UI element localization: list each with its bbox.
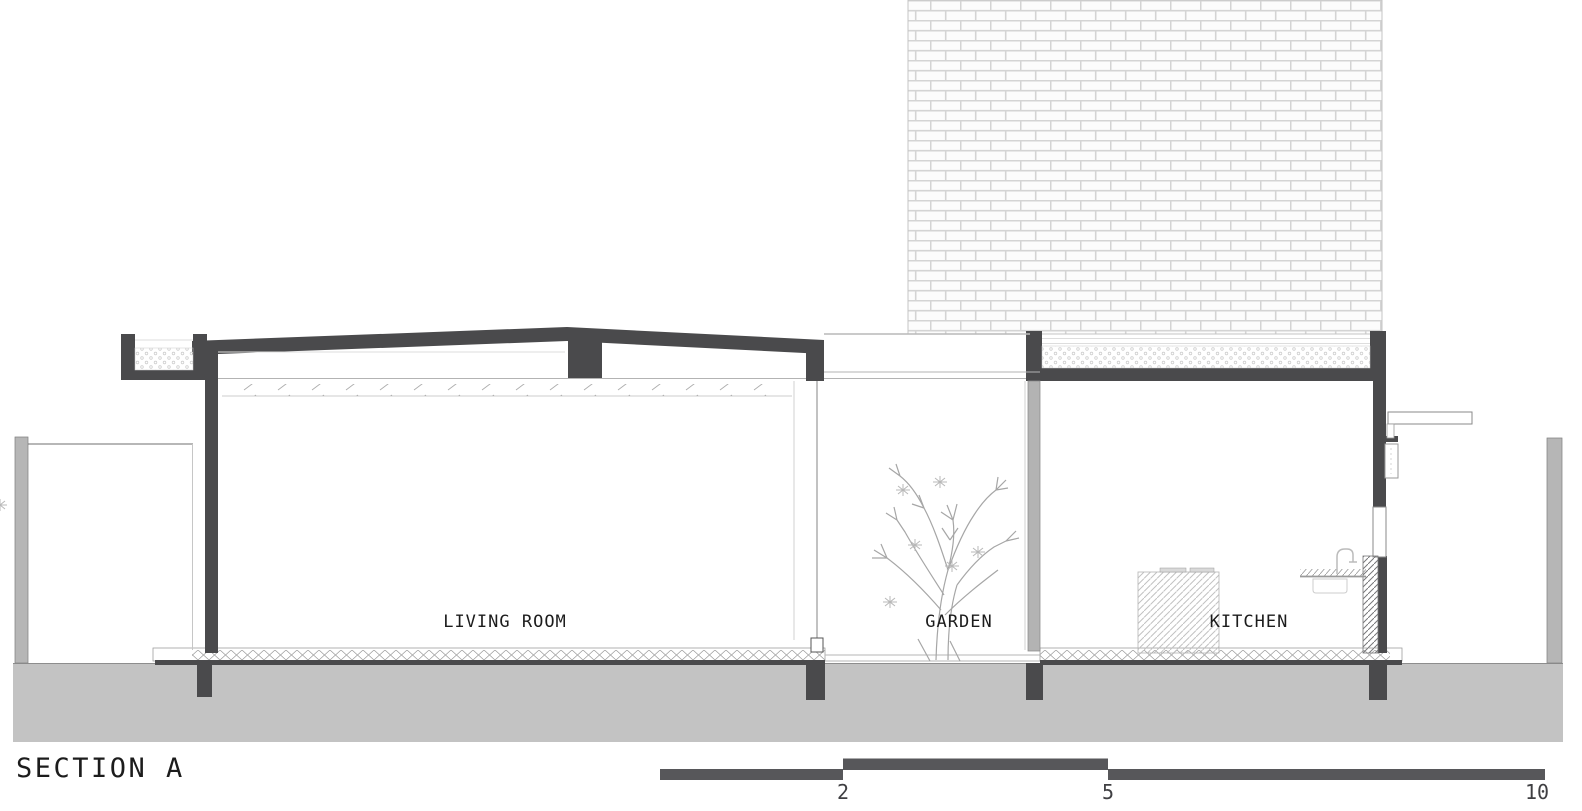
living-roof-end-beam — [806, 340, 824, 381]
kitchen-right-wall-lower — [1378, 556, 1387, 653]
kitchen-left-column — [1028, 381, 1040, 651]
tree-branch-right-low — [945, 570, 998, 615]
counter-hatch — [1300, 569, 1366, 576]
living-room-interior — [218, 352, 823, 652]
kitchen-floor-edge — [1040, 660, 1402, 665]
twig-cluster-2 — [945, 560, 959, 572]
tree-base-flare — [918, 639, 960, 661]
island-body — [1138, 572, 1219, 653]
tree-branch-left-low — [872, 544, 941, 610]
island-cooktop-2 — [1190, 568, 1214, 572]
living-roof-slab — [192, 327, 824, 355]
twig-cluster-6 — [896, 484, 910, 496]
kitchen-roof-right-post — [1370, 331, 1386, 381]
island-cooktop-1 — [1160, 568, 1186, 572]
sink-basin — [1313, 579, 1347, 593]
footing-left — [197, 665, 212, 697]
twig-cluster-7 — [0, 499, 7, 511]
label-garden: GARDEN — [925, 612, 992, 632]
kitchen-island — [1138, 568, 1219, 653]
scale-segment-2-5 — [843, 759, 1108, 771]
scale-segment-0-2 — [660, 769, 843, 780]
gutter-gravel — [135, 348, 193, 370]
brick-wall — [908, 0, 1382, 334]
ground-fill — [13, 663, 1563, 742]
kitchen-wall-window — [1373, 507, 1386, 557]
scale-segment-5-10 — [1108, 769, 1545, 780]
label-kitchen: KITCHEN — [1210, 612, 1289, 632]
tree-branch-right-mid — [957, 531, 1019, 585]
living-room-left-wall — [205, 341, 218, 653]
garden-floor — [825, 655, 1040, 661]
kitchen-roof-slab — [1026, 368, 1386, 381]
scale-label-5: 5 — [1102, 780, 1114, 804]
glass-base-frame — [811, 638, 823, 652]
tree-twig-2 — [941, 504, 957, 520]
twig-cluster-3 — [883, 596, 897, 608]
scale-bar: 2 5 10 — [660, 759, 1549, 805]
brick-wall-face — [908, 0, 1382, 334]
floor-slab-kitchen — [1040, 648, 1402, 661]
footing-garden-right — [1026, 663, 1043, 700]
living-roof-downstand-beam — [568, 340, 602, 378]
footing-kitchen-right — [1369, 663, 1387, 700]
footing-living-right — [806, 663, 825, 700]
living-ceiling-hatch — [226, 384, 786, 396]
canopy-bracket — [1387, 424, 1394, 438]
kitchen-right-wall-upper — [1373, 381, 1386, 507]
kitchen-roof-gravel — [1042, 346, 1370, 368]
tree-twig-3 — [942, 528, 958, 540]
living-floor-hatch — [192, 650, 825, 661]
scale-label-2: 2 — [837, 780, 849, 804]
section-drawing: LIVING ROOM GARDEN KITCHEN SECTION A 2 5… — [0, 0, 1582, 811]
ground — [13, 663, 1563, 742]
right-boundary-wall — [1547, 438, 1562, 663]
floor-slab-living — [153, 648, 825, 661]
living-floor-edge — [155, 660, 825, 665]
drawing-canvas: LIVING ROOM GARDEN KITCHEN SECTION A 2 5… — [0, 0, 1582, 811]
twig-cluster-5 — [933, 476, 947, 488]
left-courtyard — [15, 437, 193, 663]
section-title: SECTION A — [16, 753, 185, 784]
scale-label-10: 10 — [1525, 780, 1549, 804]
left-boundary-wall — [15, 437, 28, 663]
kitchen-roof-left-post — [1026, 331, 1042, 381]
kitchen-sink — [1300, 549, 1366, 593]
wall-canopy — [1388, 412, 1472, 424]
label-living-room: LIVING ROOM — [443, 612, 567, 632]
